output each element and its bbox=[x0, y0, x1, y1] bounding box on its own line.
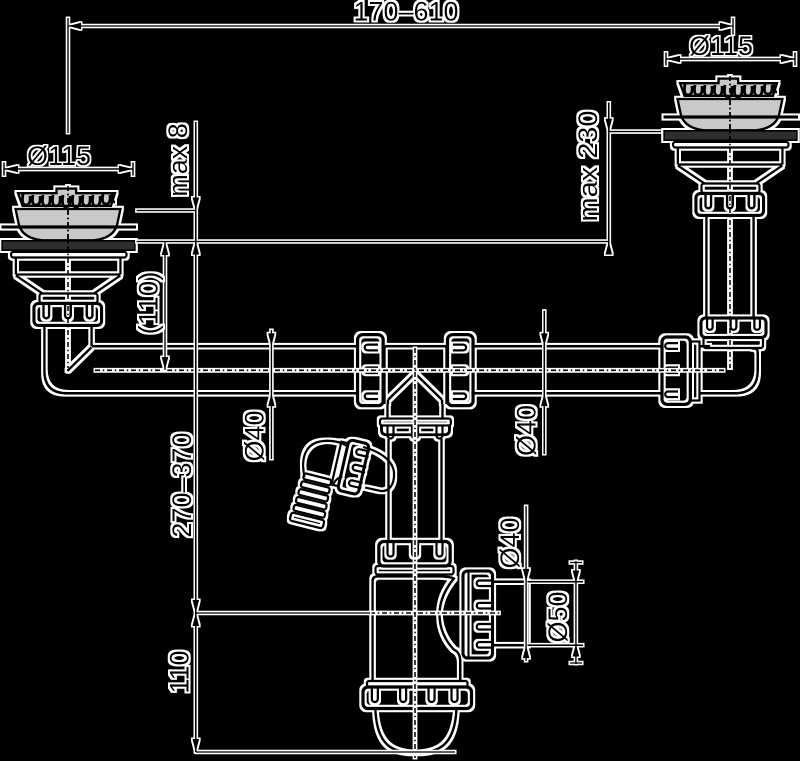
svg-text:Ø50: Ø50 bbox=[543, 591, 573, 642]
svg-text:270–370: 270–370 bbox=[167, 432, 197, 537]
svg-text:(110): (110) bbox=[134, 272, 164, 335]
svg-text:Ø40: Ø40 bbox=[495, 517, 525, 568]
svg-text:Ø40: Ø40 bbox=[239, 410, 269, 461]
svg-text:max 8: max 8 bbox=[163, 123, 193, 197]
svg-text:max 230: max 230 bbox=[573, 111, 603, 222]
svg-text:110: 110 bbox=[164, 650, 194, 693]
svg-text:Ø40: Ø40 bbox=[512, 405, 542, 456]
svg-text:170–610: 170–610 bbox=[353, 0, 458, 27]
